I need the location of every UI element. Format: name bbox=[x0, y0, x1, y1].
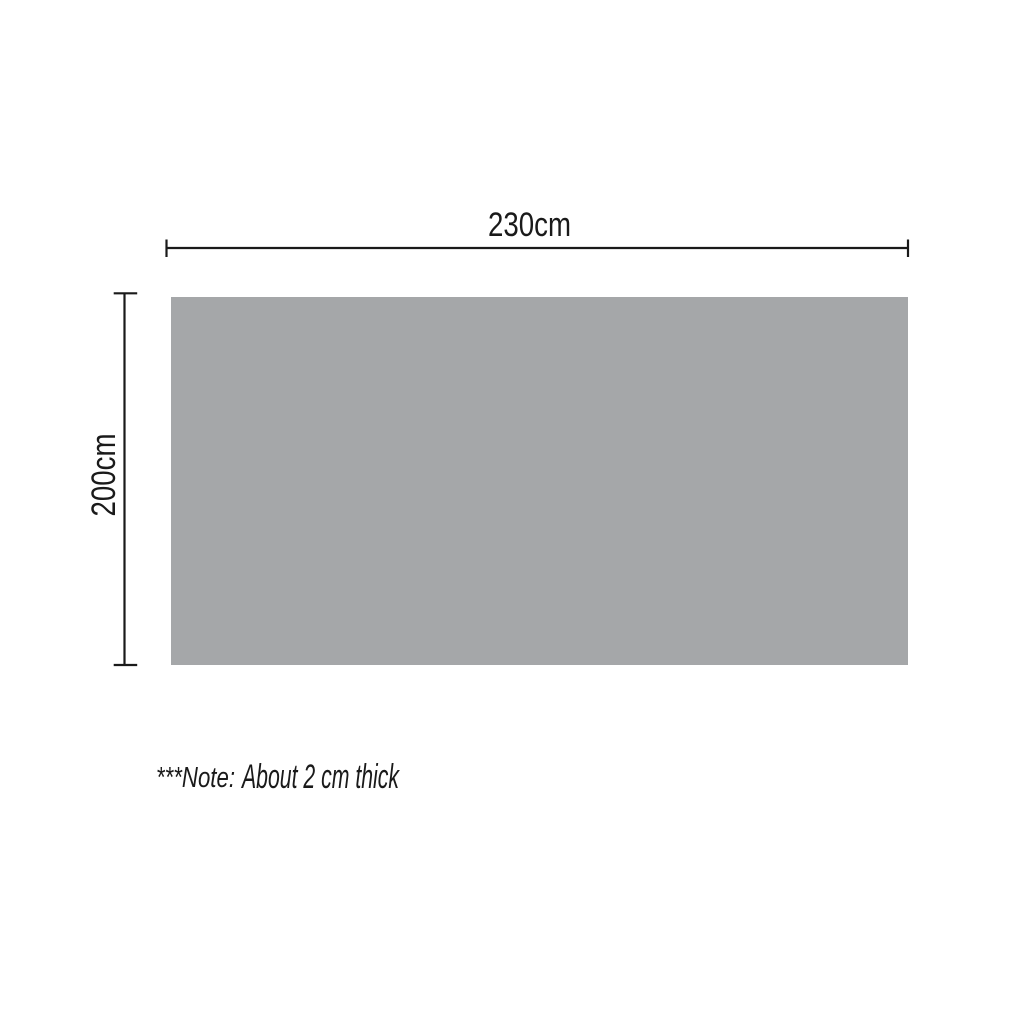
svg-text:230cm: 230cm bbox=[488, 206, 571, 244]
svg-text:***Note:: ***Note: bbox=[156, 762, 235, 794]
svg-text:200cm: 200cm bbox=[85, 434, 123, 517]
svg-text:About 2 cm thick: About 2 cm thick bbox=[241, 758, 400, 796]
